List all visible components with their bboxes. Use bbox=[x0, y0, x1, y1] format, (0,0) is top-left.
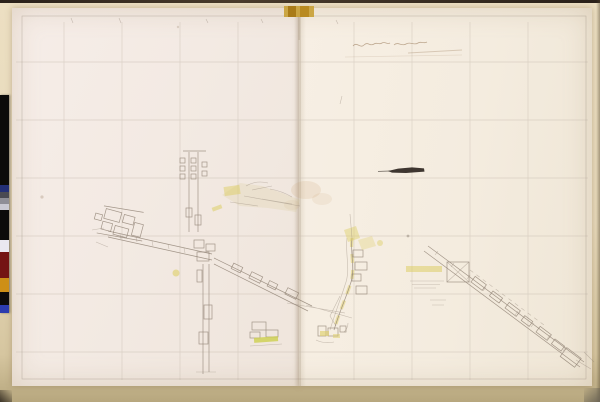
calibration-swatch-navy-blue bbox=[0, 185, 9, 192]
map-sheet-right bbox=[299, 8, 592, 386]
map-sheet-left bbox=[12, 8, 299, 386]
color-calibration-bar bbox=[0, 95, 9, 313]
photo-right-edge bbox=[596, 0, 600, 402]
calibration-swatch-white bbox=[0, 240, 9, 252]
calibration-swatch-black bbox=[0, 95, 9, 185]
scanned-map-photo bbox=[0, 0, 600, 402]
photo-corner-shadow bbox=[0, 390, 12, 402]
calibration-swatch-black bbox=[0, 292, 9, 305]
photo-corner-shadow bbox=[584, 388, 600, 402]
calibration-swatch-blue bbox=[0, 305, 9, 313]
center-fold bbox=[294, 8, 306, 386]
calibration-swatch-maroon bbox=[0, 252, 9, 278]
calibration-swatch-black bbox=[0, 210, 9, 240]
calibration-swatch-gold bbox=[0, 278, 9, 292]
